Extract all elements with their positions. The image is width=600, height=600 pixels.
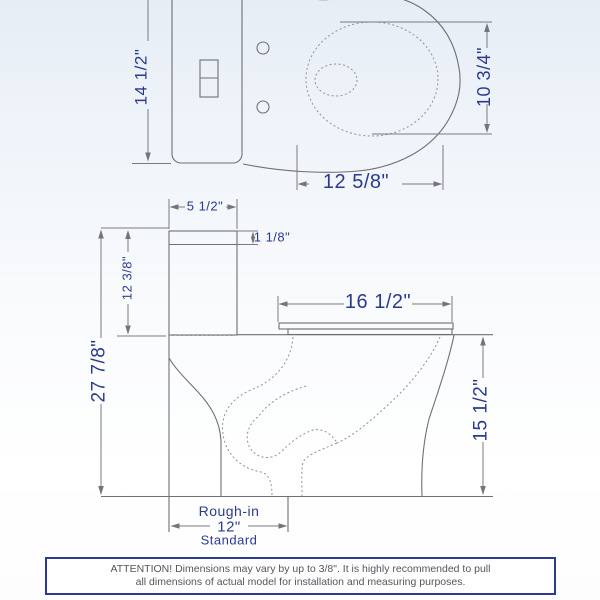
- dim-side-tank-depth: 5 1/2": [187, 200, 224, 213]
- dim-top-overall-width: 14 1/2": [133, 49, 150, 106]
- dim-side-rim-height: 15 1/2": [472, 378, 491, 441]
- dim-top-bowl-inner-width: 10 3/4": [475, 47, 493, 107]
- side-view-arrowheads: [98, 204, 486, 529]
- bowl-back-profile: [169, 358, 221, 496]
- seat-ring-side: [288, 329, 452, 335]
- bowl-inner-dotted: [337, 337, 440, 443]
- dim-side-rim-length: 16 1/2": [345, 292, 411, 312]
- rough-in-title: Rough-in: [199, 504, 260, 518]
- bolt-hole-bottom: [257, 101, 269, 113]
- trap-curve-hook: [247, 386, 337, 457]
- water-spot-dotted: [315, 64, 357, 96]
- side-view-dimensions: [101, 199, 493, 526]
- trap-outlet-dotted: [302, 443, 337, 496]
- side-view-hidden-lines: [172, 336, 440, 497]
- side-view-outline: [169, 231, 493, 532]
- attention-line-1: ATTENTION! Dimensions may vary by up to …: [111, 563, 491, 577]
- tank-side-view: [169, 231, 237, 335]
- dim-side-lid-thickness: 1 1/8": [254, 231, 291, 244]
- seat-lid-side: [279, 323, 453, 329]
- bowl-outline-top-view: [243, 0, 460, 172]
- technical-drawing-canvas: [0, 0, 600, 600]
- trap-curve-outer: [223, 337, 293, 496]
- rough-in-subtitle: Standard: [201, 534, 258, 547]
- bowl-front-profile: [422, 335, 454, 496]
- top-view-outline: [172, 0, 460, 172]
- dim-side-overall-height: 27 7/8": [90, 339, 109, 402]
- attention-note-box: ATTENTION! Dimensions may vary by up to …: [45, 557, 556, 595]
- tank-top-view: [172, 0, 242, 163]
- bolt-hole-top: [257, 42, 269, 54]
- dim-side-tank-height: 12 3/8": [121, 256, 134, 300]
- top-view-hidden-lines: [306, 22, 438, 136]
- seat-opening-dotted: [306, 22, 438, 136]
- dim-top-bowl-inner-length: 12 5/8": [323, 172, 389, 192]
- attention-line-2: all dimensions of actual model for insta…: [136, 576, 466, 590]
- top-view-arrowheads: [145, 23, 490, 187]
- top-view-dimensions: [132, 0, 492, 190]
- toilet-dimension-diagram: { "top_view": { "overall_width": "14 1/2…: [0, 0, 600, 600]
